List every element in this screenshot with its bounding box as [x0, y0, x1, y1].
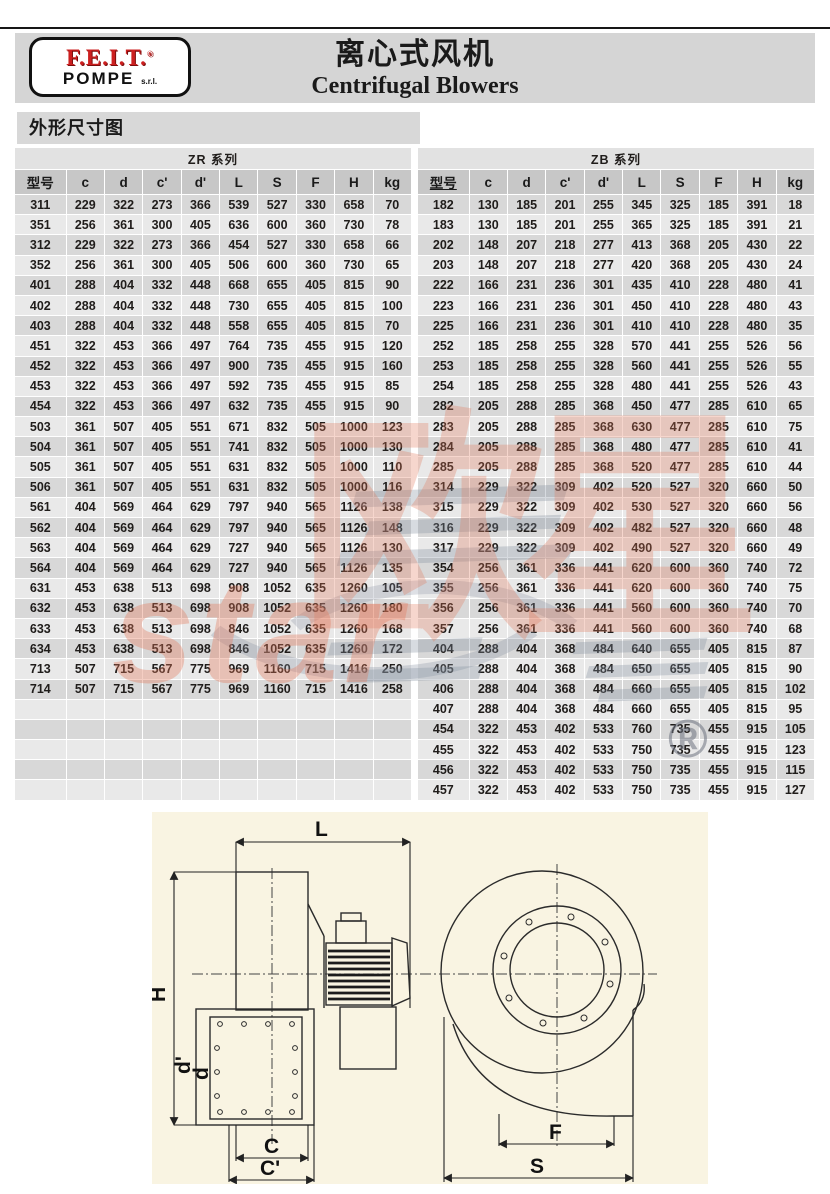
value-cell: 87 [777, 639, 815, 659]
column-header: d' [182, 170, 220, 195]
value-cell: 551 [182, 457, 220, 477]
value-cell: 741 [220, 437, 258, 457]
label-d: d [190, 1067, 213, 1080]
value-cell: 815 [335, 296, 373, 316]
table-row: 63245363851369890810526351260180 [15, 599, 412, 619]
value-cell: 453 [67, 639, 105, 659]
empty-cell [182, 760, 220, 780]
value-cell: 105 [777, 720, 815, 740]
value-cell: 832 [258, 417, 296, 437]
value-cell: 636 [220, 215, 258, 235]
value-cell: 231 [508, 316, 546, 336]
value-cell: 218 [546, 256, 584, 276]
value-cell: 630 [623, 417, 661, 437]
value-cell: 24 [777, 256, 815, 276]
column-header: S [661, 170, 699, 195]
value-cell: 402 [585, 478, 623, 498]
value-cell: 497 [182, 397, 220, 417]
empty-cell [105, 760, 143, 780]
value-cell: 453 [508, 720, 546, 740]
value-cell: 655 [661, 639, 699, 659]
value-cell: 361 [508, 558, 546, 578]
value-cell: 569 [105, 518, 143, 538]
value-cell: 360 [700, 619, 738, 639]
value-cell: 322 [508, 498, 546, 518]
table-row: 5614045694646297979405651126138 [15, 498, 412, 518]
value-cell: 320 [700, 538, 738, 558]
value-cell: 551 [182, 437, 220, 457]
value-cell: 288 [470, 639, 508, 659]
value-cell: 123 [374, 417, 412, 437]
value-cell: 402 [546, 720, 584, 740]
table-row: 402288404332448730655405815100 [15, 296, 412, 316]
value-cell: 560 [623, 357, 661, 377]
value-cell: 660 [738, 518, 776, 538]
value-cell: 441 [585, 579, 623, 599]
value-cell: 405 [182, 215, 220, 235]
value-cell: 565 [297, 558, 335, 578]
column-header: H [738, 170, 776, 195]
label-L: L [315, 818, 328, 841]
value-cell: 450 [623, 397, 661, 417]
value-cell: 1052 [258, 599, 296, 619]
value-cell: 332 [143, 296, 181, 316]
value-cell: 285 [700, 397, 738, 417]
empty-cell [258, 720, 296, 740]
label-H: H [152, 987, 170, 1002]
value-cell: 332 [143, 276, 181, 296]
value-cell: 288 [67, 316, 105, 336]
value-cell: 750 [623, 740, 661, 760]
value-cell: 322 [67, 377, 105, 397]
value-cell: 740 [738, 579, 776, 599]
model-cell: 455 [418, 740, 470, 760]
value-cell: 832 [258, 437, 296, 457]
value-cell: 655 [661, 700, 699, 720]
value-cell: 330 [297, 195, 335, 215]
value-cell: 322 [470, 760, 508, 780]
value-cell: 361 [508, 619, 546, 639]
value-cell: 322 [67, 397, 105, 417]
value-cell: 655 [258, 296, 296, 316]
empty-cell [297, 740, 335, 760]
empty-cell [297, 700, 335, 720]
value-cell: 453 [105, 357, 143, 377]
empty-cell [105, 720, 143, 740]
value-cell: 480 [623, 437, 661, 457]
value-cell: 569 [105, 538, 143, 558]
value-cell: 1416 [335, 680, 373, 700]
value-cell: 90 [374, 276, 412, 296]
empty-cell [105, 780, 143, 800]
value-cell: 455 [700, 740, 738, 760]
value-cell: 273 [143, 195, 181, 215]
empty-cell [67, 780, 105, 800]
empty-cell [220, 720, 258, 740]
empty-cell [105, 740, 143, 760]
value-cell: 148 [470, 256, 508, 276]
value-cell: 600 [258, 215, 296, 235]
value-cell: 655 [258, 276, 296, 296]
value-cell: 285 [700, 457, 738, 477]
value-cell: 940 [258, 538, 296, 558]
value-cell: 455 [297, 377, 335, 397]
model-cell: 355 [418, 579, 470, 599]
value-cell: 740 [738, 599, 776, 619]
table-row: 35525636133644162060036074075 [418, 579, 815, 599]
value-cell: 75 [777, 417, 815, 437]
empty-cell [335, 720, 373, 740]
value-cell: 336 [546, 579, 584, 599]
empty-cell [143, 720, 181, 740]
value-cell: 72 [777, 558, 815, 578]
model-cell: 457 [418, 780, 470, 800]
value-cell: 638 [105, 639, 143, 659]
value-cell: 660 [623, 700, 661, 720]
value-cell: 638 [105, 619, 143, 639]
empty-cell [15, 720, 67, 740]
value-cell: 569 [105, 498, 143, 518]
value-cell: 505 [297, 457, 335, 477]
value-cell: 255 [585, 195, 623, 215]
dimension-diagram: L H [152, 812, 708, 1184]
model-cell: 317 [418, 538, 470, 558]
value-cell: 328 [585, 336, 623, 356]
model-cell: 203 [418, 256, 470, 276]
value-cell: 368 [546, 680, 584, 700]
value-cell: 56 [777, 336, 815, 356]
table-row: 455322453402533750735455915123 [418, 740, 815, 760]
empty-cell [335, 740, 373, 760]
value-cell: 300 [143, 256, 181, 276]
value-cell: 815 [738, 639, 776, 659]
value-cell: 815 [335, 276, 373, 296]
table-row: 31222932227336645452733065866 [15, 235, 412, 255]
value-cell: 255 [700, 357, 738, 377]
model-cell: 182 [418, 195, 470, 215]
value-cell: 453 [508, 740, 546, 760]
value-cell: 336 [546, 558, 584, 578]
value-cell: 368 [585, 457, 623, 477]
model-cell: 202 [418, 235, 470, 255]
empty-cell [297, 720, 335, 740]
tables-row: ZR 系列型号cdc'd'LSFHkg311229322273366539527… [15, 148, 815, 801]
value-cell: 1126 [335, 518, 373, 538]
value-cell: 506 [220, 256, 258, 276]
value-cell: 288 [470, 680, 508, 700]
model-cell: 506 [15, 478, 67, 498]
value-cell: 1052 [258, 579, 296, 599]
table-row: 22316623123630145041022848043 [418, 296, 815, 316]
value-cell: 43 [777, 296, 815, 316]
value-cell: 846 [220, 619, 258, 639]
page-title-en: Centrifugal Blowers [15, 73, 815, 99]
value-cell: 464 [143, 538, 181, 558]
table-row: 40528840436848465065540581590 [418, 659, 815, 679]
value-cell: 277 [585, 256, 623, 276]
value-cell: 95 [777, 700, 815, 720]
value-cell: 130 [374, 538, 412, 558]
value-cell: 66 [374, 235, 412, 255]
value-cell: 185 [470, 357, 508, 377]
value-cell: 730 [220, 296, 258, 316]
empty-cell [143, 740, 181, 760]
table-row: 35625636133644156060036074070 [418, 599, 815, 619]
value-cell: 668 [220, 276, 258, 296]
value-cell: 336 [546, 619, 584, 639]
empty-row [15, 700, 412, 720]
value-cell: 1000 [335, 437, 373, 457]
value-cell: 404 [105, 316, 143, 336]
empty-cell [374, 760, 412, 780]
value-cell: 448 [182, 276, 220, 296]
value-cell: 288 [508, 417, 546, 437]
table-row: 63445363851369884610526351260172 [15, 639, 412, 659]
value-cell: 288 [470, 659, 508, 679]
value-cell: 322 [508, 518, 546, 538]
motor-fins [328, 951, 390, 999]
value-cell: 168 [374, 619, 412, 639]
value-cell: 404 [67, 558, 105, 578]
value-cell: 70 [777, 599, 815, 619]
value-cell: 832 [258, 457, 296, 477]
value-cell: 484 [585, 700, 623, 720]
value-cell: 513 [143, 579, 181, 599]
value-cell: 505 [297, 437, 335, 457]
value-cell: 405 [297, 316, 335, 336]
value-cell: 391 [738, 215, 776, 235]
value-cell: 361 [67, 437, 105, 457]
value-cell: 368 [546, 639, 584, 659]
value-cell: 477 [661, 437, 699, 457]
model-cell: 225 [418, 316, 470, 336]
value-cell: 35 [777, 316, 815, 336]
value-cell: 256 [470, 579, 508, 599]
value-cell: 453 [67, 599, 105, 619]
value-cell: 815 [738, 659, 776, 679]
motor-terminal-box [336, 921, 366, 943]
value-cell: 78 [374, 215, 412, 235]
value-cell: 404 [508, 639, 546, 659]
value-cell: 505 [297, 478, 335, 498]
value-cell: 405 [143, 457, 181, 477]
value-cell: 533 [585, 760, 623, 780]
value-cell: 250 [374, 659, 412, 679]
model-cell: 564 [15, 558, 67, 578]
table-row: 5033615074055516718325051000123 [15, 417, 412, 437]
value-cell: 236 [546, 316, 584, 336]
value-cell: 441 [661, 336, 699, 356]
value-cell: 453 [508, 780, 546, 800]
value-cell: 320 [700, 518, 738, 538]
value-cell: 497 [182, 377, 220, 397]
value-cell: 255 [700, 336, 738, 356]
value-cell: 288 [67, 276, 105, 296]
flange-back-plate [196, 1009, 314, 1125]
model-cell: 315 [418, 498, 470, 518]
value-cell: 360 [700, 579, 738, 599]
inlet-cone-edge [308, 904, 324, 936]
value-cell: 477 [661, 397, 699, 417]
value-cell: 135 [374, 558, 412, 578]
value-cell: 735 [258, 397, 296, 417]
value-cell: 345 [623, 195, 661, 215]
value-cell: 361 [105, 215, 143, 235]
value-cell: 477 [661, 417, 699, 437]
value-cell: 448 [182, 316, 220, 336]
value-cell: 735 [258, 377, 296, 397]
table-row: 5634045694646297279405651126130 [15, 538, 412, 558]
value-cell: 610 [738, 417, 776, 437]
value-cell: 361 [105, 256, 143, 276]
value-cell: 1052 [258, 619, 296, 639]
value-cell: 735 [661, 740, 699, 760]
value-cell: 402 [585, 498, 623, 518]
empty-cell [297, 760, 335, 780]
value-cell: 533 [585, 720, 623, 740]
value-cell: 735 [661, 720, 699, 740]
value-cell: 698 [182, 619, 220, 639]
empty-cell [143, 700, 181, 720]
value-cell: 148 [470, 235, 508, 255]
value-cell: 632 [220, 397, 258, 417]
model-cell: 561 [15, 498, 67, 518]
value-cell: 1260 [335, 599, 373, 619]
table-row: 63145363851369890810526351260105 [15, 579, 412, 599]
value-cell: 322 [470, 740, 508, 760]
model-cell: 282 [418, 397, 470, 417]
value-cell: 207 [508, 256, 546, 276]
value-cell: 565 [297, 518, 335, 538]
value-cell: 764 [220, 336, 258, 356]
value-cell: 567 [143, 659, 181, 679]
value-cell: 166 [470, 316, 508, 336]
value-cell: 366 [182, 235, 220, 255]
header-band: F.E.I.T.® POMPE s.r.l. 离心式风机 Centrifugal… [15, 33, 815, 103]
table-row: 20314820721827742036820543024 [418, 256, 815, 276]
model-cell: 223 [418, 296, 470, 316]
value-cell: 526 [738, 377, 776, 397]
model-cell: 253 [418, 357, 470, 377]
value-cell: 44 [777, 457, 815, 477]
value-cell: 360 [700, 599, 738, 619]
value-cell: 507 [105, 437, 143, 457]
value-cell: 366 [143, 377, 181, 397]
volute-spiral [453, 1024, 612, 1116]
value-cell: 441 [585, 599, 623, 619]
value-cell: 236 [546, 276, 584, 296]
value-cell: 43 [777, 377, 815, 397]
model-cell: 352 [15, 256, 67, 276]
value-cell: 368 [546, 700, 584, 720]
value-cell: 655 [661, 659, 699, 679]
value-cell: 273 [143, 235, 181, 255]
value-cell: 520 [623, 457, 661, 477]
series-title: ZR 系列 [15, 148, 412, 170]
value-cell: 229 [67, 235, 105, 255]
value-cell: 526 [738, 357, 776, 377]
outlet-flange [210, 1017, 302, 1119]
value-cell: 715 [105, 680, 143, 700]
table-row: 406288404368484660655405815102 [418, 680, 815, 700]
section-header: 外形尺寸图 [17, 112, 420, 144]
model-cell: 283 [418, 417, 470, 437]
value-cell: 325 [661, 195, 699, 215]
value-cell: 635 [297, 599, 335, 619]
model-cell: 406 [418, 680, 470, 700]
value-cell: 368 [546, 659, 584, 679]
value-cell: 969 [220, 659, 258, 679]
motor-end-bell [392, 938, 410, 1006]
table-row: 40428840436848464065540581587 [418, 639, 815, 659]
value-cell: 635 [297, 579, 335, 599]
model-cell: 505 [15, 457, 67, 477]
value-cell: 405 [700, 680, 738, 700]
value-cell: 600 [661, 599, 699, 619]
value-cell: 750 [623, 780, 661, 800]
value-cell: 671 [220, 417, 258, 437]
value-cell: 1126 [335, 558, 373, 578]
value-cell: 285 [546, 397, 584, 417]
value-cell: 527 [661, 538, 699, 558]
table-row: 40128840433244866865540581590 [15, 276, 412, 296]
value-cell: 368 [585, 417, 623, 437]
value-cell: 900 [220, 357, 258, 377]
flange-bolt-holes [215, 1022, 298, 1115]
value-cell: 320 [700, 498, 738, 518]
value-cell: 775 [182, 680, 220, 700]
value-cell: 172 [374, 639, 412, 659]
motor-terminal-cap [341, 913, 361, 921]
value-cell: 715 [297, 659, 335, 679]
value-cell: 391 [738, 195, 776, 215]
value-cell: 484 [585, 680, 623, 700]
value-cell: 229 [67, 195, 105, 215]
table-row: 71450771556777596911607151416258 [15, 680, 412, 700]
value-cell: 915 [738, 720, 776, 740]
value-cell: 480 [738, 316, 776, 336]
value-cell: 402 [546, 760, 584, 780]
value-cell: 420 [623, 256, 661, 276]
value-cell: 166 [470, 296, 508, 316]
column-header: d [105, 170, 143, 195]
value-cell: 365 [623, 215, 661, 235]
value-cell: 185 [470, 336, 508, 356]
page-titles: 离心式风机 Centrifugal Blowers [15, 33, 815, 99]
model-cell: 562 [15, 518, 67, 538]
column-header: d' [585, 170, 623, 195]
value-cell: 629 [182, 558, 220, 578]
value-cell: 551 [182, 478, 220, 498]
value-cell: 464 [143, 558, 181, 578]
value-cell: 361 [508, 579, 546, 599]
value-cell: 75 [777, 579, 815, 599]
value-cell: 120 [374, 336, 412, 356]
value-cell: 255 [585, 215, 623, 235]
value-cell: 455 [700, 720, 738, 740]
value-cell: 410 [661, 316, 699, 336]
value-cell: 560 [623, 619, 661, 639]
value-cell: 361 [508, 599, 546, 619]
value-cell: 507 [67, 659, 105, 679]
value-cell: 513 [143, 599, 181, 619]
value-cell: 455 [700, 760, 738, 780]
value-cell: 405 [182, 256, 220, 276]
value-cell: 148 [374, 518, 412, 538]
value-cell: 256 [470, 599, 508, 619]
table-row: 31522932230940253052732066056 [418, 498, 815, 518]
value-cell: 735 [258, 357, 296, 377]
